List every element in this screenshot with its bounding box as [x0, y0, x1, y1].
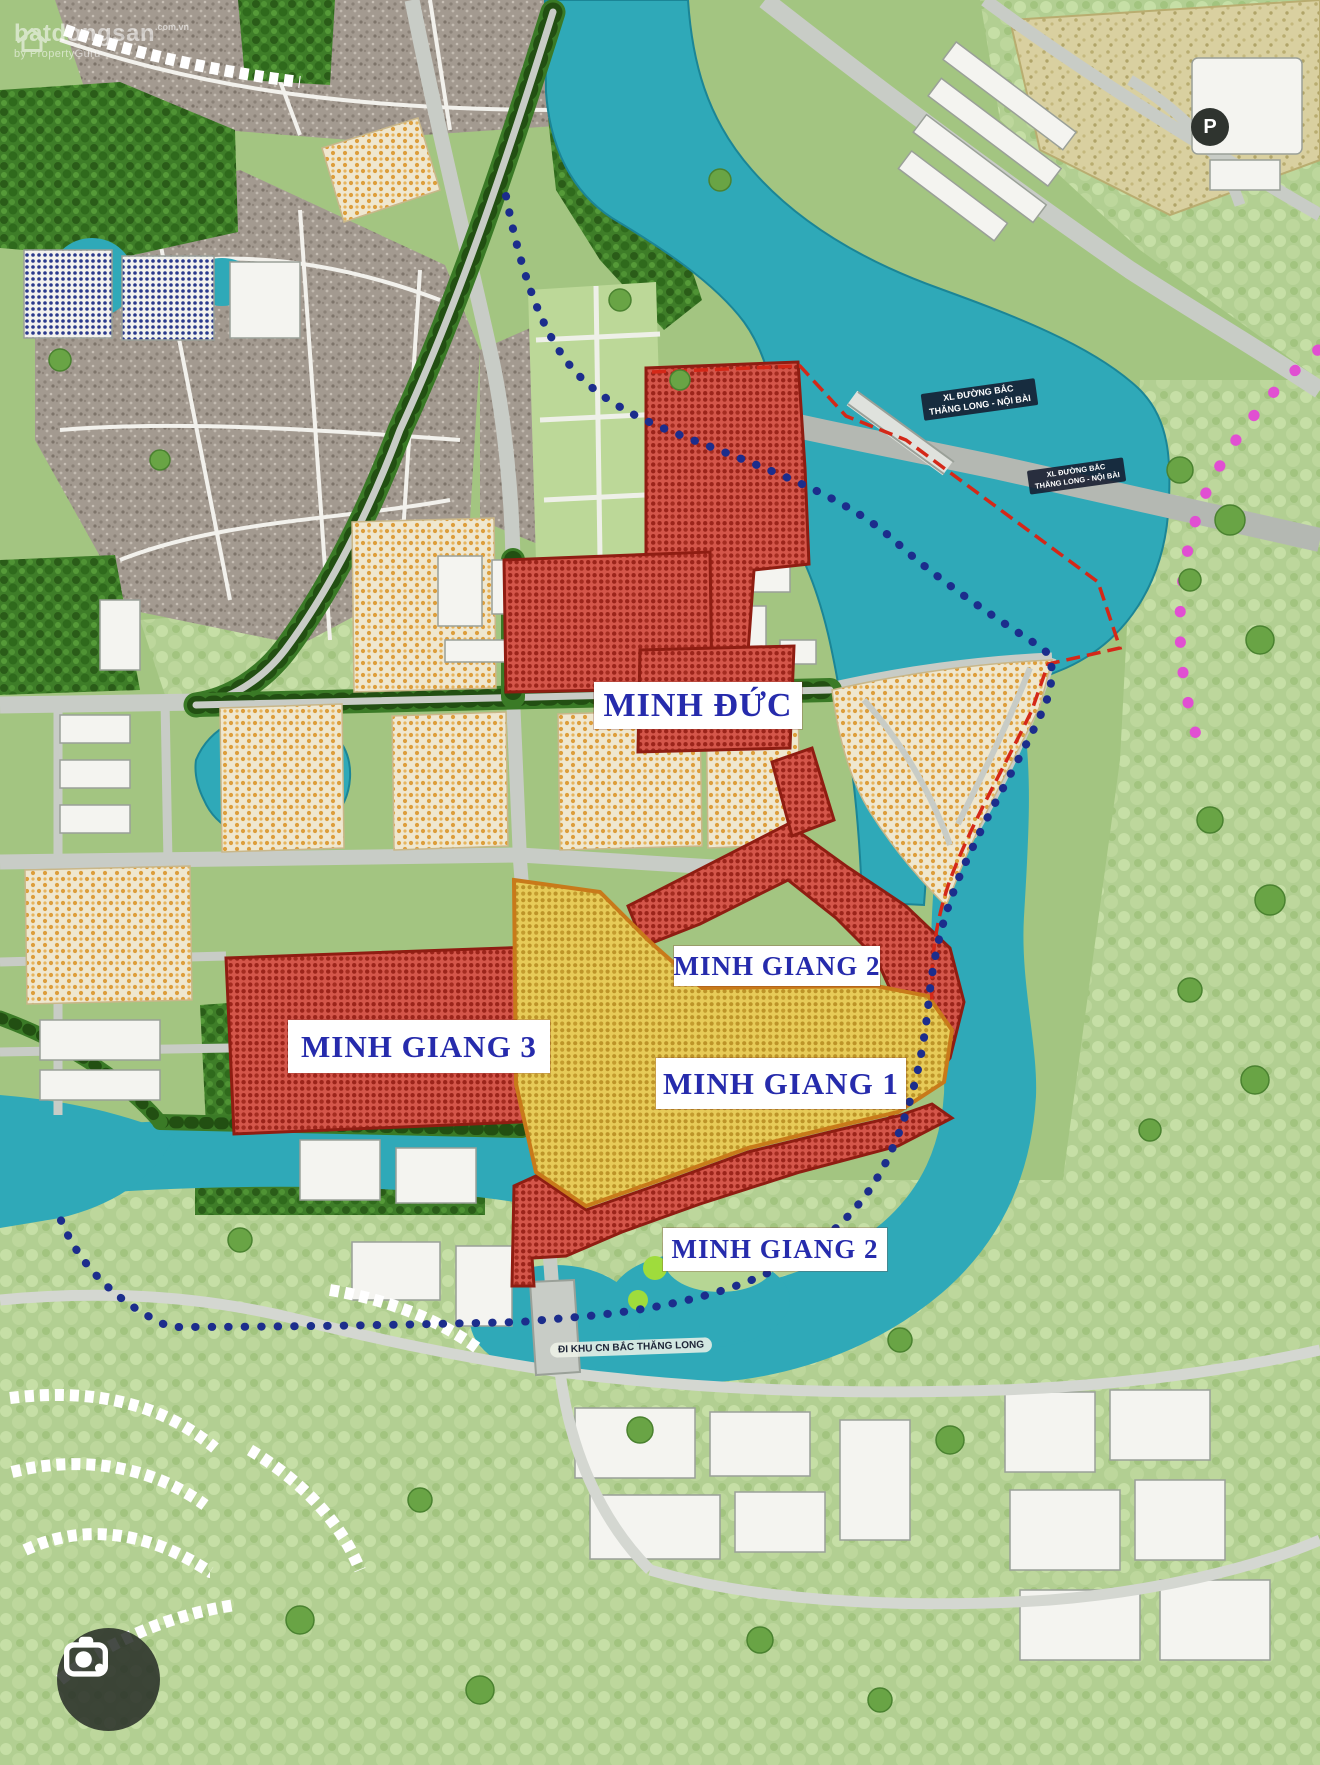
zone-label-minh-giang-3: MINH GIANG 3	[288, 1020, 550, 1073]
map-canvas	[0, 0, 1320, 1765]
camera-lens-button[interactable]	[57, 1628, 160, 1731]
watermark-house-icon	[14, 22, 50, 58]
zone-label-minh-giang-1: MINH GIANG 1	[656, 1058, 906, 1109]
watermark: batdongsan .com.vn by PropertyGuru	[14, 22, 189, 60]
bridge	[530, 1280, 580, 1375]
masterplan-map: batdongsan .com.vn by PropertyGuru MINH …	[0, 0, 1320, 1765]
watermark-suffix: .com.vn	[155, 23, 189, 32]
zone-label-minh-giang-2-lower: MINH GIANG 2	[663, 1228, 887, 1271]
zone-label-minh-duc: MINH ĐỨC	[594, 682, 802, 729]
tree-grove-n	[238, 0, 335, 85]
zone-label-minh-giang-2-upper: MINH GIANG 2	[674, 946, 880, 986]
camera-icon	[57, 1628, 115, 1686]
parking-pin[interactable]: P	[1191, 108, 1229, 146]
